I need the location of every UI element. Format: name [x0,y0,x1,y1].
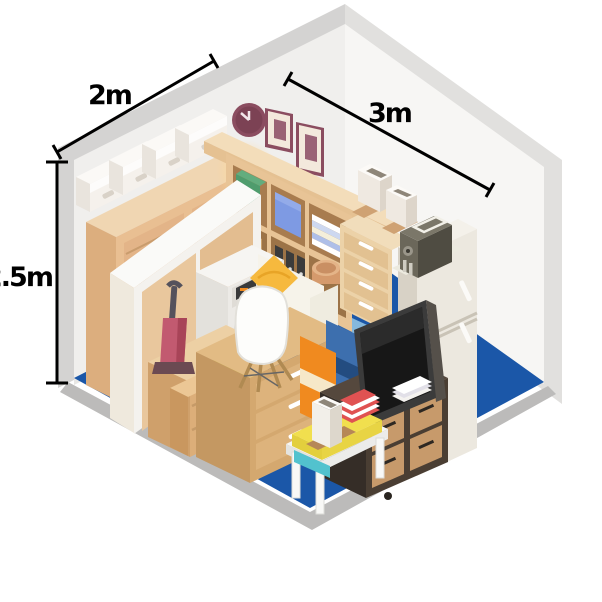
wardrobe-side [110,273,134,433]
picture-frame-1 [265,108,293,153]
depth-label: 3m [368,98,411,129]
stand-caster [384,492,392,500]
cardboard-box [170,388,188,456]
height-label: 2.5m [0,262,48,293]
width-label: 2m [88,80,131,111]
chair-shell [236,286,288,364]
hat-box [312,260,340,284]
storage-unit-scene: 2m 3m 2.5m [0,0,602,602]
vacuum-base [152,362,195,374]
